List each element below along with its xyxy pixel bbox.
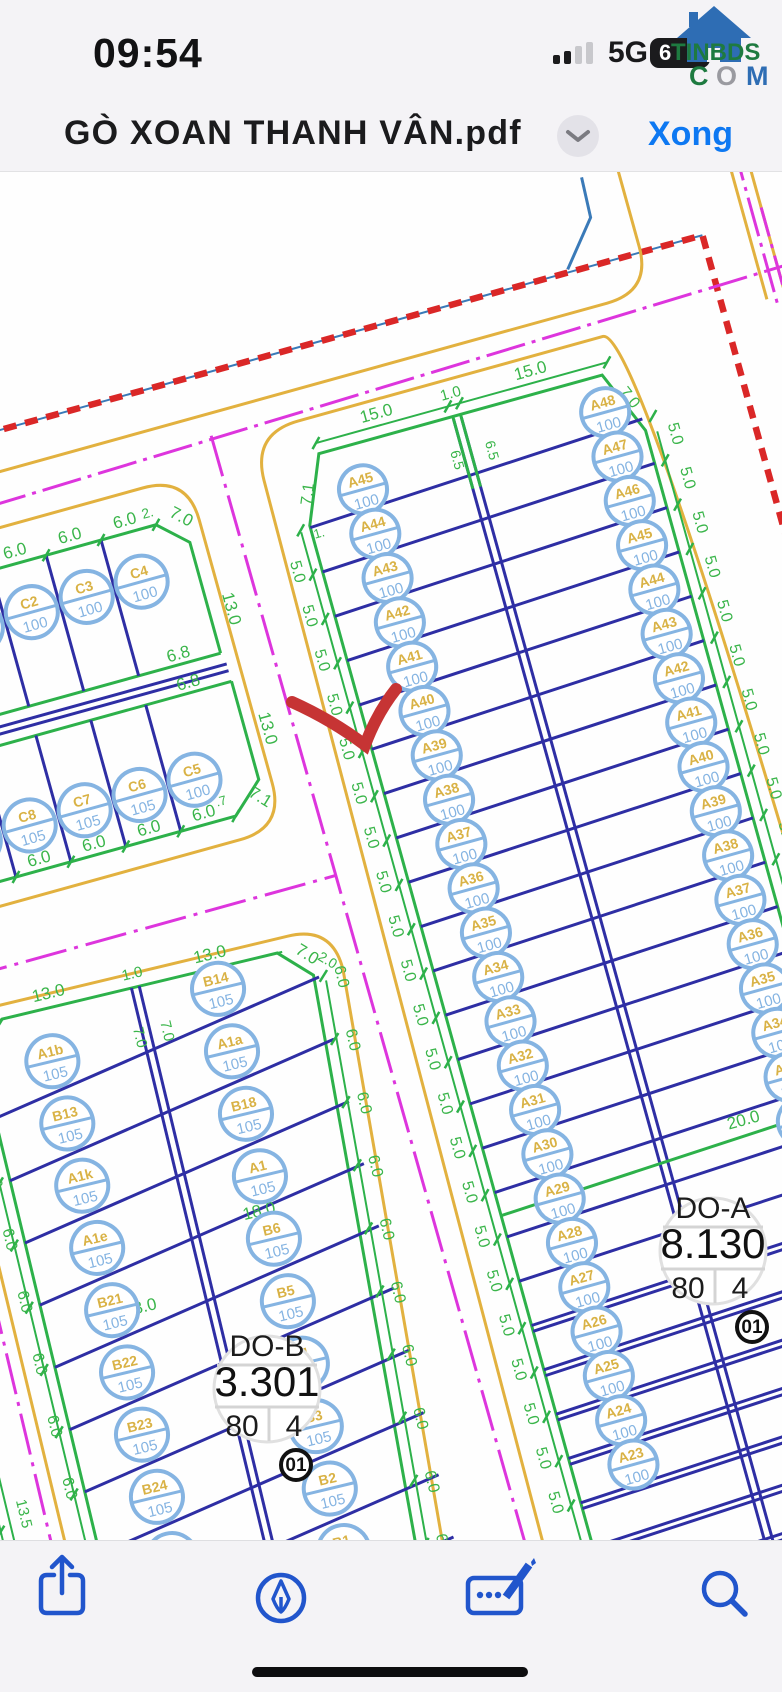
svg-text:3.301: 3.301 [214, 1358, 319, 1405]
svg-text:80: 80 [225, 1410, 258, 1443]
svg-text:M: M [746, 61, 769, 91]
svg-text:O: O [716, 61, 737, 91]
svg-text:01: 01 [285, 1455, 307, 1476]
svg-text:01: 01 [741, 1317, 763, 1338]
svg-text:80: 80 [671, 1272, 704, 1305]
svg-text:7.1: 7.1 [298, 482, 318, 506]
svg-text:C: C [689, 61, 709, 91]
svg-text:4: 4 [732, 1272, 749, 1305]
svg-text:4: 4 [286, 1410, 303, 1443]
svg-text:8.130: 8.130 [660, 1220, 765, 1267]
